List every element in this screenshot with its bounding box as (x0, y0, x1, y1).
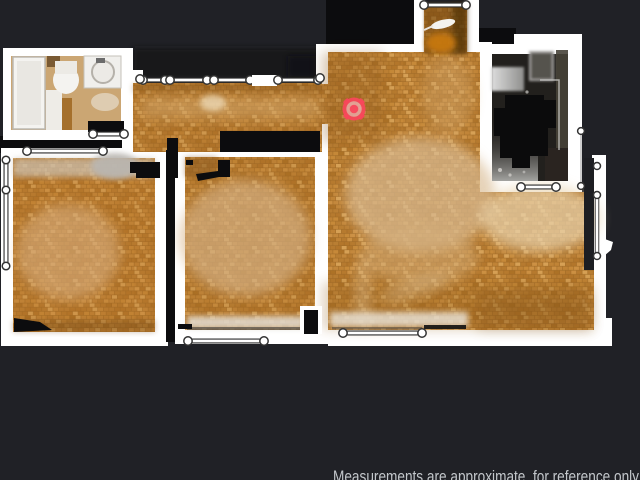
svg-text:Measurements are approximate,: Measurements are approximate, for refere… (333, 468, 640, 480)
